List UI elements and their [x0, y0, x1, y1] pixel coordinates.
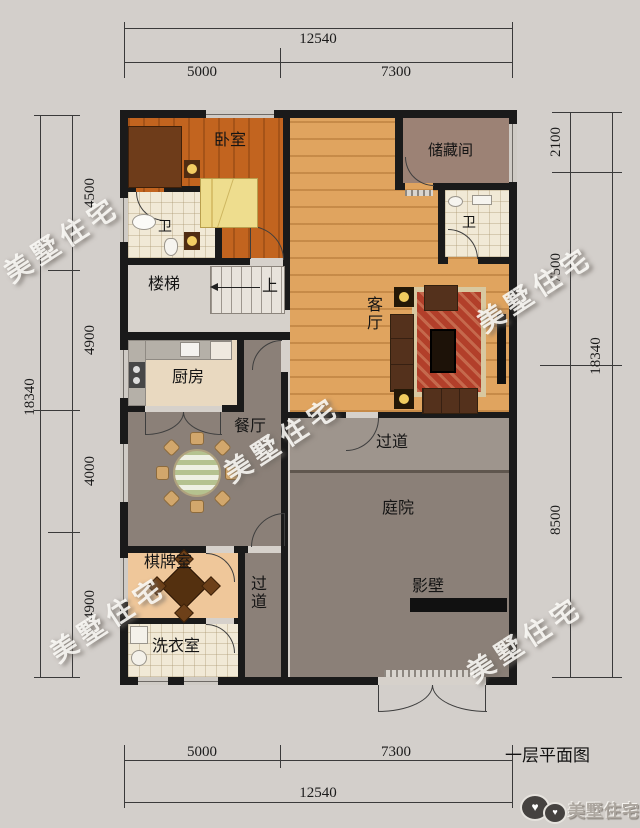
- door-leaf: [485, 685, 486, 711]
- window: [206, 110, 274, 118]
- room-label-living: 客厅: [364, 296, 381, 332]
- dim-tick: [124, 745, 125, 808]
- wall-kitchen-right: [237, 332, 244, 412]
- wechat-bubble-small-icon: ♥: [543, 802, 567, 824]
- water-heater: [131, 650, 147, 666]
- room-label-screen-wall: 影壁: [412, 578, 444, 595]
- burner-icon: [133, 377, 140, 384]
- bed: [200, 178, 258, 228]
- dim-line-top-segments: [124, 62, 513, 63]
- screen-wall-bar: [410, 598, 507, 612]
- armchair: [424, 285, 458, 311]
- lamp-icon: [399, 292, 409, 302]
- dim-bottom-seg-1: 5000: [152, 744, 252, 760]
- wall-storage-left: [395, 110, 403, 190]
- dim-tick: [552, 172, 622, 173]
- wall-chess-bottom: [234, 618, 245, 624]
- bed-fold-line: [217, 179, 234, 227]
- stairs-up-label: 上: [262, 278, 278, 295]
- window: [509, 124, 517, 182]
- entry-threshold: [384, 670, 480, 677]
- dim-tick: [540, 365, 622, 366]
- wall-storage-bottom: [395, 183, 405, 190]
- bed-pillow-line: [211, 179, 213, 227]
- door-leaf: [378, 685, 379, 711]
- room-label-bath1: 卫: [158, 219, 172, 236]
- lamp-icon: [187, 236, 197, 246]
- kitchen-sink: [180, 342, 200, 357]
- dining-table: [173, 449, 221, 497]
- room-label-laundry: 洗衣室: [152, 638, 200, 655]
- dim-tick: [512, 22, 513, 78]
- floor-plan-page: { "plan": { "title": "一层平面图", "watermark…: [0, 0, 640, 828]
- burner-icon: [133, 366, 140, 373]
- wall-bedroom-bottom: [120, 258, 250, 265]
- dim-line-top-total: [124, 28, 513, 29]
- dim-top-total: 12540: [268, 31, 368, 47]
- door-leaf: [250, 226, 251, 259]
- room-label-courtyard: 庭院: [382, 500, 414, 517]
- wall-dining-right: [281, 332, 288, 340]
- window: [120, 350, 128, 398]
- dim-tick: [280, 745, 281, 768]
- storage-threshold: [405, 190, 433, 196]
- wall-kitchen-bottom: [222, 405, 244, 412]
- dim-tick: [124, 22, 125, 78]
- room-label-storage: 储藏间: [428, 143, 473, 160]
- dim-line-bottom-total: [124, 802, 513, 803]
- dim-bottom-total: 12540: [268, 785, 368, 801]
- dim-left-total: 18340: [22, 367, 38, 427]
- dim-tick: [48, 532, 80, 533]
- room-label-bath2: 卫: [462, 215, 476, 232]
- dim-right-seg-3: 8500: [548, 490, 564, 550]
- logo-text: 美墅住宅: [568, 797, 640, 822]
- corridor-vertical: [245, 553, 281, 677]
- stairs-arrow: [218, 287, 260, 288]
- dim-left-seg-3: 4000: [82, 441, 98, 501]
- dim-line-left-total: [40, 115, 41, 678]
- door-leaf: [145, 412, 146, 434]
- wall-dining-bottom: [234, 546, 248, 553]
- entry-door-arc-left: [378, 685, 433, 712]
- dim-top-seg-2: 7300: [346, 64, 446, 80]
- coffee-table: [430, 329, 456, 373]
- sofa: [422, 388, 478, 414]
- window: [120, 444, 128, 502]
- chair: [156, 466, 169, 480]
- dim-line-left-segments: [72, 115, 73, 678]
- dim-tick: [34, 410, 80, 411]
- chair: [190, 432, 204, 445]
- wall-bath2-bottom: [438, 257, 448, 264]
- wall-bath2-left: [438, 190, 445, 264]
- wall-bath2-bottom: [478, 257, 509, 264]
- door-leaf: [284, 513, 285, 546]
- dim-tick: [48, 270, 80, 271]
- room-label-corridor-h: 过道: [376, 434, 408, 451]
- washer: [130, 626, 148, 644]
- dim-bottom-seg-2: 7300: [346, 744, 446, 760]
- wall-outer-right: [509, 110, 517, 685]
- lamp-icon: [399, 394, 409, 404]
- dim-right-total: 18340: [588, 326, 604, 386]
- wall-chess-right: [238, 553, 245, 677]
- room-label-corridor-v: 过道: [248, 575, 265, 611]
- dim-left-seg-2: 4900: [82, 310, 98, 370]
- room-label-stairs: 楼梯: [148, 276, 180, 293]
- window: [138, 677, 168, 685]
- sink: [132, 214, 156, 230]
- chair: [190, 500, 204, 513]
- dim-right-seg-1: 2100: [548, 112, 564, 172]
- dim-tick: [34, 115, 80, 116]
- dim-line-bottom-segments: [124, 760, 513, 761]
- wall-outer-top: [120, 110, 517, 118]
- wall-stairs-bottom: [120, 332, 290, 340]
- wall-dining-bottom: [120, 546, 206, 553]
- dim-tick: [552, 677, 622, 678]
- toilet: [164, 238, 178, 256]
- sink: [472, 195, 492, 205]
- wall-kitchen-bottom: [120, 405, 145, 412]
- wall-storage-bottom: [433, 183, 509, 190]
- lamp-icon: [187, 164, 197, 174]
- room-label-kitchen: 厨房: [172, 369, 204, 386]
- sofa: [390, 314, 414, 392]
- dim-tick: [34, 677, 80, 678]
- room-label-bedroom: 卧室: [214, 132, 246, 149]
- drawing-title: 一层平面图: [505, 741, 590, 766]
- fridge: [210, 341, 232, 360]
- toilet: [448, 196, 463, 207]
- stairs-arrowhead: [210, 283, 218, 291]
- stove: [129, 362, 145, 388]
- door-leaf: [220, 412, 221, 434]
- window: [184, 677, 218, 685]
- dim-tick: [280, 48, 281, 78]
- dim-top-seg-1: 5000: [152, 64, 252, 80]
